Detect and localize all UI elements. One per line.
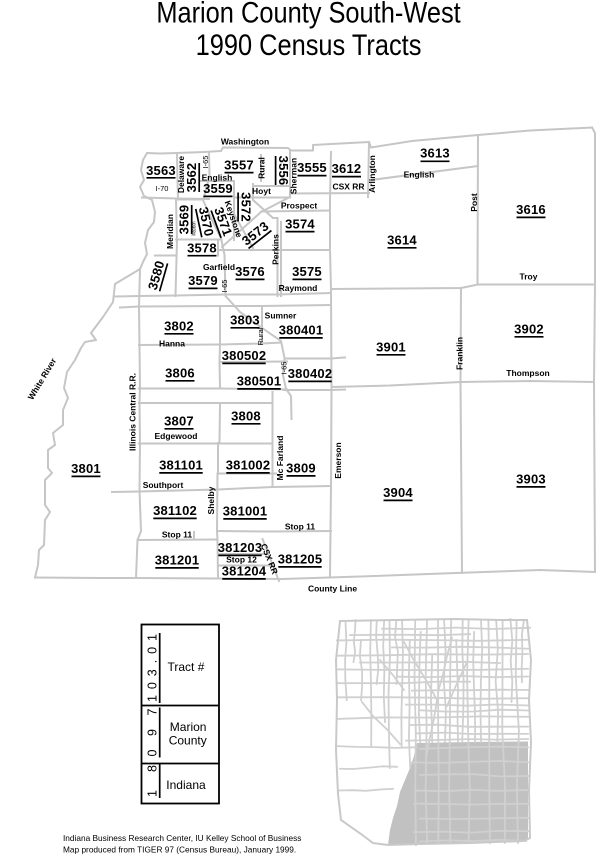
svg-text:Sherman: Sherman xyxy=(289,158,299,194)
svg-text:I-65: I-65 xyxy=(201,156,210,169)
svg-text:3803: 3803 xyxy=(230,313,260,328)
svg-text:3576: 3576 xyxy=(235,264,265,279)
svg-text:Rural: Rural xyxy=(256,327,265,345)
svg-text:380502: 380502 xyxy=(222,348,267,363)
svg-text:Emerson: Emerson xyxy=(333,442,343,478)
svg-text:Stop 11: Stop 11 xyxy=(285,522,316,532)
svg-text:Franklin: Franklin xyxy=(455,337,465,370)
svg-text:3902: 3902 xyxy=(514,322,544,337)
svg-text:3616: 3616 xyxy=(516,202,546,217)
svg-text:3903: 3903 xyxy=(516,472,546,487)
svg-text:Indiana Business Research Cent: Indiana Business Research Center, IU Kel… xyxy=(63,833,301,843)
svg-text:18: 18 xyxy=(146,765,160,797)
svg-text:3806: 3806 xyxy=(165,366,195,381)
svg-text:3904: 3904 xyxy=(383,485,413,500)
svg-text:Garfield: Garfield xyxy=(203,262,235,272)
svg-text:I-65: I-65 xyxy=(220,280,229,293)
svg-text:3614: 3614 xyxy=(387,233,417,248)
svg-text:Stop 12: Stop 12 xyxy=(226,555,257,565)
svg-text:103.01: 103.01 xyxy=(146,634,160,702)
svg-text:I-70: I-70 xyxy=(156,184,169,193)
svg-text:381001: 381001 xyxy=(223,504,268,519)
svg-text:Meridian: Meridian xyxy=(165,214,175,249)
svg-text:380402: 380402 xyxy=(288,366,333,381)
svg-text:Mc Farland: Mc Farland xyxy=(275,436,285,481)
svg-text:3612: 3612 xyxy=(332,161,362,176)
svg-text:3569: 3569 xyxy=(177,205,192,235)
svg-text:White River: White River xyxy=(26,356,59,402)
svg-text:3809: 3809 xyxy=(286,461,316,476)
svg-text:Marion County South-West: Marion County South-West xyxy=(156,0,461,29)
svg-text:Arlington: Arlington xyxy=(367,155,377,193)
svg-text:3562: 3562 xyxy=(184,163,199,193)
svg-text:381102: 381102 xyxy=(153,503,197,518)
svg-text:Thompson: Thompson xyxy=(506,368,549,378)
svg-text:3574: 3574 xyxy=(285,217,315,232)
svg-text:Delaware: Delaware xyxy=(176,156,186,194)
svg-text:Tract #: Tract # xyxy=(168,660,205,674)
svg-text:3901: 3901 xyxy=(376,340,406,355)
svg-text:Shelby: Shelby xyxy=(206,486,216,514)
svg-text:Hoyt: Hoyt xyxy=(252,186,271,196)
svg-text:380501: 380501 xyxy=(237,374,282,389)
svg-text:Rural: Rural xyxy=(257,157,267,179)
svg-text:097: 097 xyxy=(146,708,160,756)
svg-text:3563: 3563 xyxy=(146,163,176,178)
svg-text:381205: 381205 xyxy=(278,552,323,567)
svg-text:3555: 3555 xyxy=(297,160,327,175)
svg-text:I-65: I-65 xyxy=(280,362,289,375)
svg-text:381201: 381201 xyxy=(155,553,200,568)
svg-text:County: County xyxy=(169,734,207,748)
svg-text:Prospect: Prospect xyxy=(281,201,318,211)
svg-text:Perkins: Perkins xyxy=(271,234,281,265)
svg-text:Southport: Southport xyxy=(143,480,184,490)
svg-text:Stop 11: Stop 11 xyxy=(162,530,193,540)
svg-text:Hanna: Hanna xyxy=(159,339,185,349)
svg-text:1990 Census Tracts: 1990 Census Tracts xyxy=(196,28,422,61)
svg-text:Edgewood: Edgewood xyxy=(155,431,198,441)
svg-text:Post: Post xyxy=(469,193,479,212)
svg-text:Raymond: Raymond xyxy=(279,283,318,293)
svg-text:Indiana: Indiana xyxy=(166,778,206,792)
svg-text:3572: 3572 xyxy=(238,192,253,222)
svg-text:381101: 381101 xyxy=(159,458,203,473)
svg-text:3559: 3559 xyxy=(203,181,233,196)
svg-text:3578: 3578 xyxy=(187,241,217,256)
svg-text:381002: 381002 xyxy=(226,458,271,473)
svg-text:English: English xyxy=(404,170,435,180)
svg-text:381204: 381204 xyxy=(222,564,267,579)
svg-text:381203: 381203 xyxy=(218,540,263,555)
svg-text:3613: 3613 xyxy=(420,146,450,161)
svg-text:CSX RR: CSX RR xyxy=(332,182,364,192)
svg-text:Madison: Madison xyxy=(192,221,198,235)
svg-text:380401: 380401 xyxy=(279,323,324,338)
svg-text:Marion: Marion xyxy=(170,720,207,734)
svg-text:3575: 3575 xyxy=(292,264,322,279)
svg-text:3801: 3801 xyxy=(71,461,101,476)
svg-text:3557: 3557 xyxy=(224,158,254,173)
svg-text:3807: 3807 xyxy=(164,414,194,429)
svg-text:3802: 3802 xyxy=(164,319,194,334)
svg-text:English: English xyxy=(202,173,233,183)
svg-text:3808: 3808 xyxy=(231,409,261,424)
svg-text:3579: 3579 xyxy=(188,273,218,288)
svg-text:Washington: Washington xyxy=(221,137,269,147)
svg-text:County Line: County Line xyxy=(308,584,357,594)
svg-text:Map produced from TIGER 97 (Ce: Map produced from TIGER 97 (Census Burea… xyxy=(63,845,296,855)
svg-text:Illinois Central R.R.: Illinois Central R.R. xyxy=(128,373,138,451)
svg-text:Sumner: Sumner xyxy=(265,311,297,321)
svg-text:Troy: Troy xyxy=(520,272,538,282)
